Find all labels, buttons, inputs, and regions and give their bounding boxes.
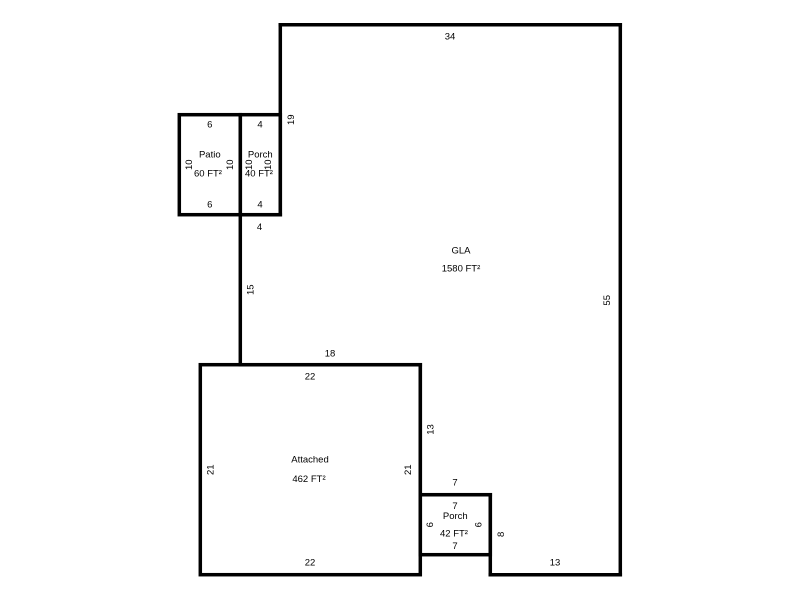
svg-text:18: 18 <box>325 349 336 360</box>
svg-text:55: 55 <box>602 295 613 306</box>
svg-text:13: 13 <box>426 424 437 435</box>
svg-text:13: 13 <box>550 558 561 569</box>
svg-text:19: 19 <box>286 114 297 125</box>
svg-text:40 FT²: 40 FT² <box>245 169 273 180</box>
svg-text:8: 8 <box>496 532 507 537</box>
svg-text:4: 4 <box>257 119 262 130</box>
svg-text:Porch: Porch <box>248 149 273 160</box>
svg-text:22: 22 <box>305 372 316 383</box>
svg-text:6: 6 <box>207 199 212 210</box>
svg-text:21: 21 <box>206 464 217 475</box>
svg-text:34: 34 <box>445 32 456 43</box>
svg-text:4: 4 <box>257 222 262 233</box>
svg-text:462 FT²: 462 FT² <box>292 474 325 485</box>
svg-text:10: 10 <box>225 159 236 170</box>
svg-text:4: 4 <box>257 199 262 210</box>
svg-text:15: 15 <box>246 284 257 295</box>
svg-text:60 FT²: 60 FT² <box>194 169 222 180</box>
svg-text:Attached: Attached <box>291 454 329 465</box>
svg-text:22: 22 <box>305 558 316 569</box>
svg-text:6: 6 <box>425 522 436 527</box>
svg-text:42 FT²: 42 FT² <box>440 528 468 539</box>
svg-text:Porch: Porch <box>443 511 468 522</box>
svg-text:6: 6 <box>207 119 212 130</box>
svg-text:1580 FT²: 1580 FT² <box>442 263 481 274</box>
svg-text:7: 7 <box>452 477 457 488</box>
svg-text:Patio: Patio <box>199 149 221 160</box>
svg-text:7: 7 <box>452 541 457 552</box>
svg-text:21: 21 <box>403 464 414 475</box>
svg-text:GLA: GLA <box>451 245 471 256</box>
svg-text:6: 6 <box>474 522 485 527</box>
